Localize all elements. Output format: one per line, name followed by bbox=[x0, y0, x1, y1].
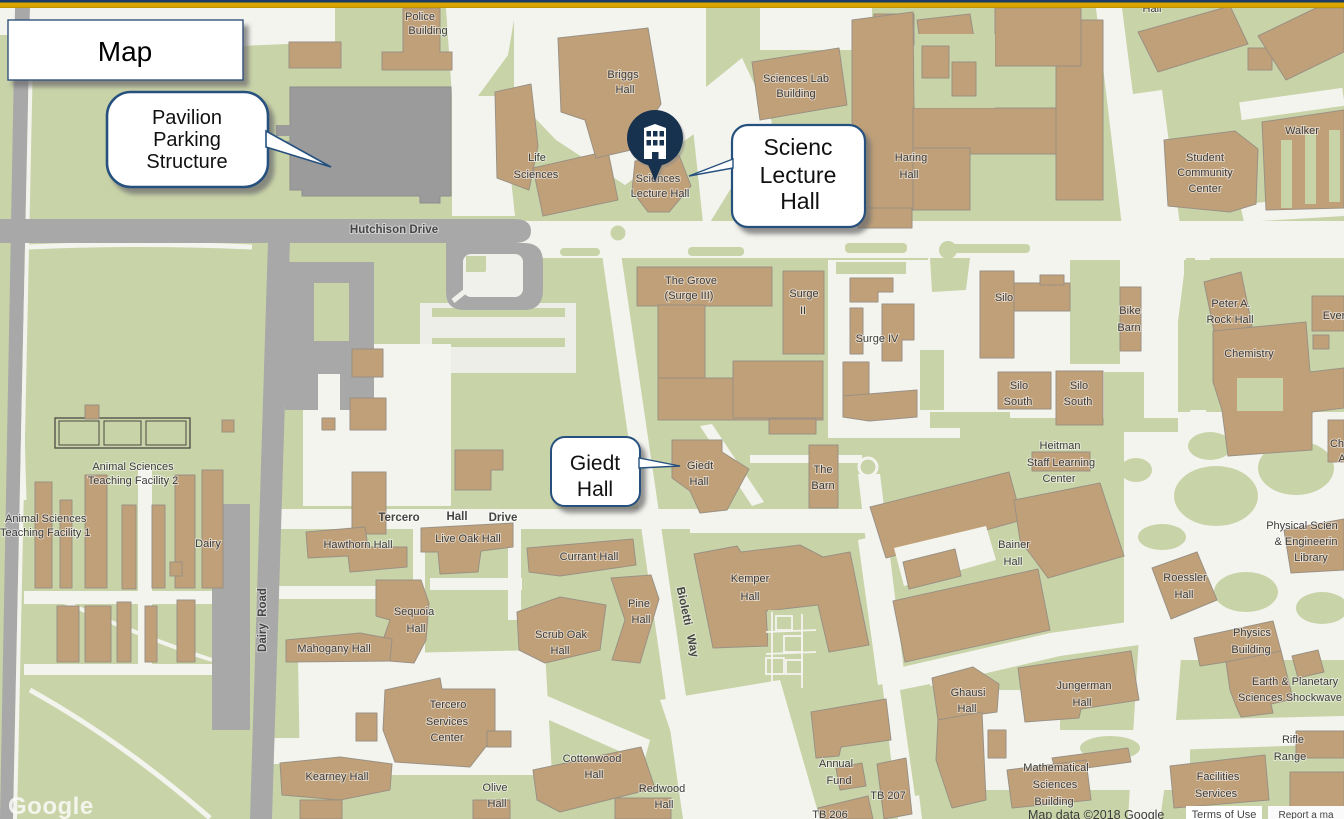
svg-text:TB 206: TB 206 bbox=[812, 809, 847, 819]
svg-text:Hall: Hall bbox=[690, 476, 709, 488]
svg-text:Kearney Hall: Kearney Hall bbox=[306, 771, 369, 783]
svg-text:Earth & Planetary: Earth & Planetary bbox=[1252, 676, 1339, 688]
svg-text:Hall: Hall bbox=[1004, 556, 1023, 568]
svg-text:Hall: Hall bbox=[900, 169, 919, 181]
svg-text:Hall: Hall bbox=[551, 645, 570, 657]
svg-text:& Engineerin: & Engineerin bbox=[1275, 536, 1338, 548]
svg-text:Jungerman: Jungerman bbox=[1056, 680, 1111, 692]
svg-text:Chemistry: Chemistry bbox=[1224, 348, 1274, 360]
svg-text:Kemper: Kemper bbox=[731, 573, 770, 585]
svg-text:II: II bbox=[800, 305, 806, 317]
svg-text:Hall: Hall bbox=[958, 703, 977, 715]
svg-text:Rock Hall: Rock Hall bbox=[1206, 314, 1253, 326]
svg-text:Sciences Lab: Sciences Lab bbox=[763, 73, 829, 85]
svg-text:Currant Hall: Currant Hall bbox=[560, 551, 619, 563]
svg-text:Ch: Ch bbox=[1330, 438, 1344, 450]
svg-text:Scrub Oak: Scrub Oak bbox=[535, 629, 587, 641]
svg-text:Ghausi: Ghausi bbox=[951, 687, 986, 699]
svg-text:Services: Services bbox=[426, 716, 469, 728]
svg-text:Surge: Surge bbox=[789, 288, 818, 300]
svg-text:Silo: Silo bbox=[1070, 380, 1088, 392]
svg-text:Heitman: Heitman bbox=[1040, 440, 1081, 452]
svg-text:Olive: Olive bbox=[482, 782, 507, 794]
svg-text:Teaching Facility 1: Teaching Facility 1 bbox=[0, 527, 91, 539]
svg-text:South: South bbox=[1004, 396, 1033, 408]
svg-text:Hall: Hall bbox=[655, 799, 674, 811]
svg-text:Staff Learning: Staff Learning bbox=[1027, 457, 1095, 469]
svg-text:Hall: Hall bbox=[616, 84, 635, 96]
svg-text:Animal Sciences: Animal Sciences bbox=[92, 461, 174, 473]
svg-text:Student: Student bbox=[1186, 152, 1224, 164]
svg-text:Surge IV: Surge IV bbox=[856, 333, 899, 345]
svg-text:Pine: Pine bbox=[628, 598, 650, 610]
svg-text:Center: Center bbox=[1188, 183, 1221, 195]
svg-text:Sciences Shockwave: Sciences Shockwave bbox=[1238, 692, 1342, 704]
svg-text:Building: Building bbox=[1034, 796, 1073, 808]
svg-text:Physics: Physics bbox=[1233, 627, 1271, 639]
svg-text:Drive: Drive bbox=[489, 512, 518, 524]
svg-text:Haring: Haring bbox=[895, 152, 927, 164]
svg-text:Bainer: Bainer bbox=[998, 539, 1030, 551]
svg-text:Building: Building bbox=[776, 88, 815, 100]
svg-text:Scienc: Scienc bbox=[763, 134, 832, 160]
svg-text:Animal Sciences: Animal Sciences bbox=[5, 513, 87, 525]
svg-text:Parking: Parking bbox=[153, 129, 221, 151]
svg-text:Services: Services bbox=[1195, 788, 1238, 800]
svg-text:Police: Police bbox=[405, 11, 435, 23]
svg-text:Barn: Barn bbox=[1117, 322, 1140, 334]
svg-text:Terms of Use: Terms of Use bbox=[1192, 809, 1257, 819]
svg-text:Mahogany Hall: Mahogany Hall bbox=[297, 643, 370, 655]
svg-text:Library: Library bbox=[1294, 552, 1328, 564]
svg-text:Lecture Hall: Lecture Hall bbox=[631, 188, 690, 200]
svg-text:Building: Building bbox=[1231, 644, 1270, 656]
svg-text:Pavilion: Pavilion bbox=[152, 107, 222, 129]
svg-text:Walker: Walker bbox=[1285, 125, 1319, 137]
svg-text:Cottonwood: Cottonwood bbox=[563, 753, 622, 765]
svg-text:Rifle: Rifle bbox=[1282, 734, 1304, 746]
svg-text:Facilities: Facilities bbox=[1197, 771, 1240, 783]
svg-text:Hall: Hall bbox=[1175, 589, 1194, 601]
svg-text:Range: Range bbox=[1274, 751, 1306, 763]
svg-text:Briggs: Briggs bbox=[607, 69, 639, 81]
svg-text:Google: Google bbox=[8, 793, 94, 819]
svg-text:Giedt: Giedt bbox=[687, 460, 713, 472]
svg-text:Physical Scien: Physical Scien bbox=[1266, 520, 1338, 532]
svg-text:Silo: Silo bbox=[1010, 380, 1028, 392]
svg-text:Hall: Hall bbox=[780, 188, 820, 214]
svg-text:Ever: Ever bbox=[1323, 310, 1344, 322]
svg-text:Sequoia: Sequoia bbox=[394, 606, 435, 618]
svg-text:Hall: Hall bbox=[407, 623, 426, 635]
svg-text:Sciences: Sciences bbox=[1033, 779, 1078, 791]
svg-text:Barn: Barn bbox=[811, 480, 834, 492]
svg-text:Hall: Hall bbox=[488, 798, 507, 810]
svg-text:Hall: Hall bbox=[577, 478, 613, 501]
svg-text:Map: Map bbox=[98, 36, 152, 67]
svg-text:The: The bbox=[814, 464, 833, 476]
svg-text:Map data ©2018 Google: Map data ©2018 Google bbox=[1028, 808, 1164, 819]
svg-text:Hutchison Drive: Hutchison Drive bbox=[350, 224, 438, 236]
svg-text:Tercero: Tercero bbox=[378, 512, 419, 524]
svg-text:TB 207: TB 207 bbox=[870, 790, 905, 802]
svg-text:South: South bbox=[1064, 396, 1093, 408]
svg-text:Hall: Hall bbox=[741, 591, 760, 603]
svg-text:Hall: Hall bbox=[1073, 697, 1092, 709]
svg-text:Sciences: Sciences bbox=[514, 169, 559, 181]
svg-text:Building: Building bbox=[408, 25, 447, 37]
svg-text:Hall: Hall bbox=[632, 614, 651, 626]
svg-text:Center: Center bbox=[430, 732, 463, 744]
svg-text:Teaching Facility 2: Teaching Facility 2 bbox=[88, 475, 179, 487]
svg-text:Life: Life bbox=[528, 152, 546, 164]
svg-text:Tercero: Tercero bbox=[430, 699, 467, 711]
svg-text:Hawthorn Hall: Hawthorn Hall bbox=[323, 539, 392, 551]
svg-text:A: A bbox=[1338, 453, 1344, 465]
svg-text:Giedt: Giedt bbox=[570, 452, 620, 475]
svg-text:Peter A.: Peter A. bbox=[1211, 298, 1250, 310]
svg-text:Hall: Hall bbox=[446, 511, 467, 523]
svg-text:Lecture: Lecture bbox=[760, 162, 837, 188]
svg-text:Silo: Silo bbox=[995, 292, 1013, 304]
svg-text:Center: Center bbox=[1042, 473, 1075, 485]
svg-text:Live Oak Hall: Live Oak Hall bbox=[435, 533, 500, 545]
svg-text:(Surge III): (Surge III) bbox=[665, 290, 714, 302]
svg-text:Bike: Bike bbox=[1119, 305, 1140, 317]
svg-text:Community: Community bbox=[1177, 167, 1233, 179]
svg-text:Mathematical: Mathematical bbox=[1023, 762, 1088, 774]
svg-text:Structure: Structure bbox=[146, 151, 227, 173]
svg-text:Sciences: Sciences bbox=[636, 173, 681, 185]
svg-text:Report a ma: Report a ma bbox=[1278, 810, 1333, 819]
svg-text:Hall: Hall bbox=[585, 769, 604, 781]
svg-text:Fund: Fund bbox=[826, 775, 851, 787]
svg-text:Dairy: Dairy bbox=[195, 538, 221, 550]
svg-text:Dairy Road: Dairy Road bbox=[257, 588, 269, 652]
svg-text:The Grove: The Grove bbox=[665, 275, 717, 287]
svg-text:Redwood: Redwood bbox=[639, 783, 685, 795]
svg-text:Annual: Annual bbox=[819, 758, 853, 770]
svg-text:Roessler: Roessler bbox=[1163, 572, 1207, 584]
